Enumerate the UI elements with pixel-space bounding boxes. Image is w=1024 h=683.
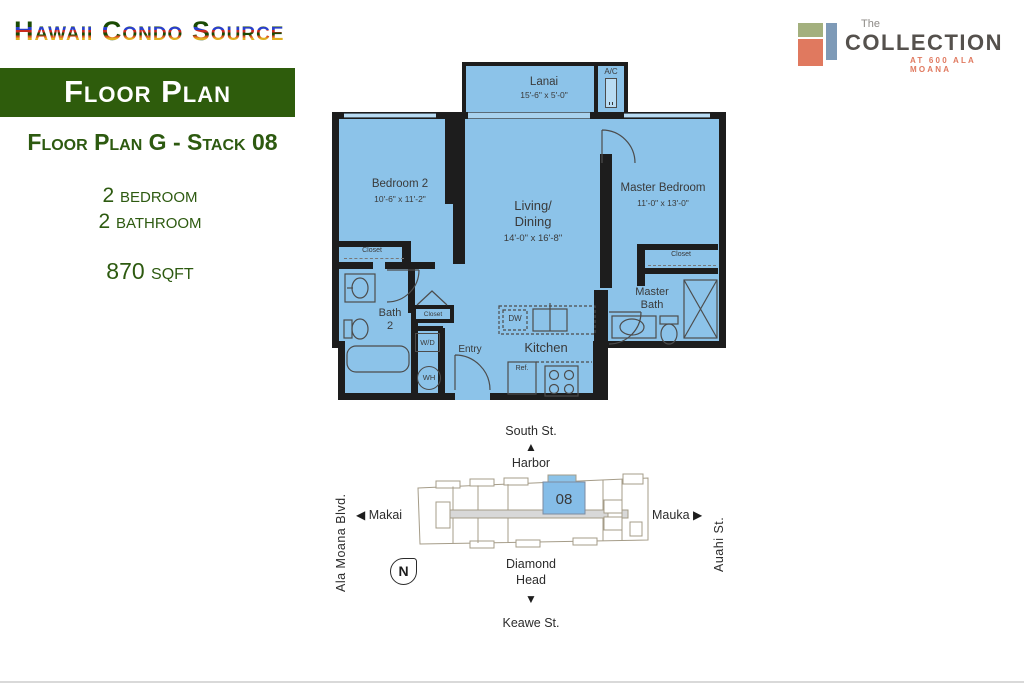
north-compass-icon: N — [390, 558, 417, 585]
logo-the-text: The — [861, 18, 880, 30]
building-footprint: 08 — [408, 472, 664, 556]
entry-label: Entry — [458, 344, 481, 356]
hawaii-condo-source-logo[interactable]: Hawaii Condo Source — [14, 16, 284, 47]
logo-sage-square — [798, 23, 823, 37]
building-location-map: South St. ▲ Harbor ◀ Makai Mauka ▶ Ala M… — [330, 422, 730, 672]
the-collection-logo[interactable]: The COLLECTION AT 600 ALA MOANA — [795, 18, 1010, 70]
lanai-room: Lanai 15'-6" x 5'-0" A/C — [462, 62, 628, 116]
wall — [413, 326, 443, 331]
entry-closet: Closet — [412, 305, 454, 323]
ac-unit-shape — [605, 78, 617, 108]
bedroom2-closet-label: Closet — [362, 247, 382, 255]
elevator-core-left — [436, 502, 450, 528]
unit-08-number: 08 — [556, 491, 573, 508]
ref-label: Ref. — [516, 365, 529, 373]
wall — [645, 268, 718, 274]
wall — [453, 198, 465, 264]
kitchen-label: Kitchen — [524, 341, 567, 356]
living-label-1: Living/ — [514, 199, 552, 214]
master-window — [624, 113, 710, 118]
closet-rod-line — [648, 265, 716, 266]
bedrooms-text: 2 bedroom — [0, 183, 300, 209]
south-st-label: South St. — [505, 424, 556, 438]
lanai-sliding-door — [468, 112, 590, 119]
logo-tagline: AT 600 ALA MOANA — [910, 56, 1010, 74]
wall — [385, 262, 435, 269]
arrow-right-icon: ▶ — [693, 508, 702, 522]
bedroom2-dims: 10'-6" x 11'-2" — [374, 195, 426, 205]
bedroom2-label: Bedroom 2 — [372, 178, 428, 191]
arrow-left-icon: ◀ — [356, 508, 365, 522]
closet-rod-line — [344, 258, 404, 259]
ac-closet: A/C — [594, 66, 624, 112]
floor-plan-banner: Floor Plan — [0, 68, 295, 117]
auahi-st-label: Auahi St. — [712, 472, 726, 572]
master-bath-label-2: Bath — [641, 299, 664, 312]
entry-closet-label: Closet — [424, 311, 442, 318]
diamond-head-label-1: Diamond — [506, 557, 556, 571]
diamond-head-label-2: Head — [516, 573, 546, 587]
bedroom2-window — [344, 113, 436, 118]
arrow-up-icon: ▲ — [525, 440, 537, 454]
dw-label: DW — [508, 314, 521, 323]
bath2-label-1: Bath — [379, 307, 402, 320]
plan-title: Floor Plan G - Stack 08 — [0, 129, 305, 156]
master-bath-label-1: Master — [635, 286, 669, 299]
wall — [637, 244, 645, 286]
makai-label: ◀ Makai — [356, 508, 402, 522]
master-bedroom-label: Master Bedroom — [620, 182, 705, 195]
wall — [339, 262, 373, 269]
logo-collection-text: COLLECTION — [845, 30, 1003, 56]
corridor — [448, 510, 628, 518]
wall — [445, 112, 465, 204]
wall — [600, 154, 612, 288]
arrow-down-icon: ▼ — [525, 592, 537, 606]
master-bedroom-dims: 11'-0" x 13'-0" — [637, 199, 689, 209]
living-dims: 14'-0" x 16'-8" — [504, 234, 562, 245]
bathrooms-text: 2 bathroom — [0, 209, 300, 235]
water-heater: WH — [417, 366, 441, 390]
bath2-label-2: 2 — [387, 320, 393, 333]
wall — [594, 290, 608, 400]
ac-grille — [609, 102, 613, 105]
ac-label: A/C — [604, 67, 617, 76]
logo-slate-square — [826, 23, 837, 60]
living-label-2: Dining — [515, 215, 552, 230]
washer-dryer: W/D — [415, 333, 440, 352]
lanai-label: Lanai — [530, 76, 558, 89]
logo-coral-square — [798, 39, 823, 66]
floor-plan-diagram: Lanai 15'-6" x 5'-0" A/C — [332, 58, 734, 406]
ala-moana-blvd-label: Ala Moana Blvd. — [334, 468, 348, 592]
mauka-label: Mauka ▶ — [652, 508, 702, 522]
keawe-st-label: Keawe St. — [503, 616, 560, 630]
bed-bath-summary: 2 bedroom 2 bathroom — [0, 183, 300, 235]
lanai-dims: 15'-6" x 5'-0" — [520, 91, 568, 101]
unit-08-lanai — [548, 475, 576, 482]
floor-plan-page: Hawaii Condo Source The COLLECTION AT 60… — [0, 0, 1024, 683]
wall — [637, 244, 718, 250]
area-text: 870 sqft — [0, 258, 300, 285]
harbor-label: Harbor — [512, 456, 550, 470]
entry-door-opening — [455, 387, 490, 400]
master-closet-label: Closet — [671, 251, 691, 259]
